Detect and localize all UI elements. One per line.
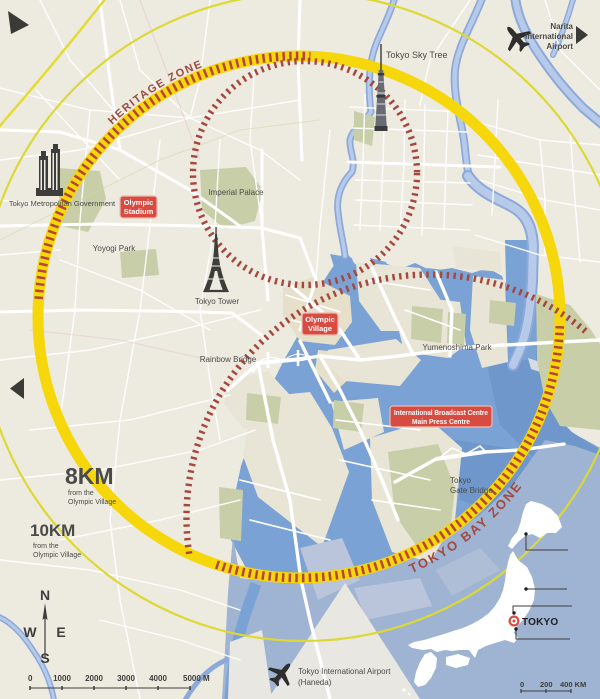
svg-text:200: 200 bbox=[540, 680, 553, 689]
svg-text:from the: from the bbox=[33, 543, 59, 550]
svg-text:(Haneda): (Haneda) bbox=[298, 678, 332, 687]
svg-text:E: E bbox=[56, 624, 65, 640]
svg-text:2000: 2000 bbox=[85, 674, 103, 683]
svg-text:Olympic: Olympic bbox=[124, 198, 154, 207]
svg-text:International Broadcast Centre: International Broadcast Centre bbox=[394, 408, 488, 417]
svg-text:8KM: 8KM bbox=[65, 463, 114, 489]
svg-text:Airport: Airport bbox=[546, 42, 573, 51]
svg-text:400 KM: 400 KM bbox=[560, 680, 586, 689]
svg-text:Olympic Village: Olympic Village bbox=[33, 552, 81, 559]
svg-text:Stadium: Stadium bbox=[124, 207, 154, 216]
svg-text:Main Press Centre: Main Press Centre bbox=[412, 417, 470, 426]
svg-text:from the: from the bbox=[68, 490, 94, 497]
svg-text:Rainbow Bridge: Rainbow Bridge bbox=[200, 355, 257, 364]
svg-text:Tokyo: Tokyo bbox=[450, 476, 471, 485]
svg-text:4000: 4000 bbox=[149, 674, 167, 683]
svg-text:W: W bbox=[23, 624, 37, 640]
svg-text:Narita: Narita bbox=[550, 22, 573, 31]
svg-text:Olympic Village: Olympic Village bbox=[68, 499, 116, 506]
svg-text:Tokyo International Airport: Tokyo International Airport bbox=[298, 667, 391, 676]
svg-text:N: N bbox=[40, 587, 50, 603]
svg-text:Tokyo Metropolitan Government: Tokyo Metropolitan Government bbox=[9, 199, 116, 208]
svg-text:3000: 3000 bbox=[117, 674, 135, 683]
svg-text:0: 0 bbox=[28, 674, 33, 683]
svg-text:1000: 1000 bbox=[53, 674, 71, 683]
svg-text:Imperial Palace: Imperial Palace bbox=[208, 188, 264, 197]
svg-text:5000 M: 5000 M bbox=[183, 674, 210, 683]
svg-text:Yumenoshima Park: Yumenoshima Park bbox=[422, 343, 492, 352]
svg-text:TOKYO: TOKYO bbox=[522, 617, 558, 628]
svg-text:Village: Village bbox=[308, 324, 332, 333]
svg-text:Tokyo Sky Tree: Tokyo Sky Tree bbox=[386, 50, 448, 60]
svg-text:0: 0 bbox=[520, 680, 524, 689]
svg-text:International: International bbox=[525, 32, 573, 41]
svg-text:Gate Bridge: Gate Bridge bbox=[450, 486, 493, 495]
svg-text:Tokyo Tower: Tokyo Tower bbox=[195, 297, 240, 306]
svg-text:10KM: 10KM bbox=[30, 521, 75, 540]
svg-text:Yoyogi Park: Yoyogi Park bbox=[93, 244, 136, 253]
svg-text:Olympic: Olympic bbox=[305, 315, 335, 324]
